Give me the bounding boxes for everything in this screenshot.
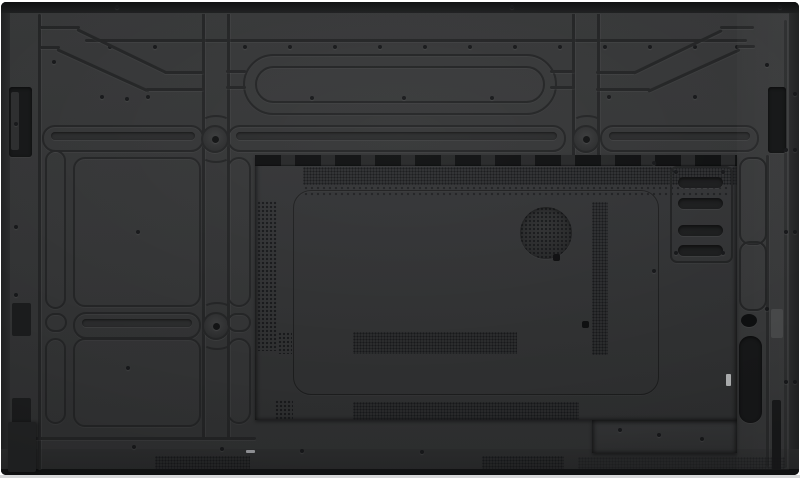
screw [402, 96, 406, 100]
mount-rail-upper [42, 125, 204, 152]
screw [648, 45, 652, 49]
screw [657, 433, 661, 437]
mount-rail-lower [73, 312, 201, 339]
screw [14, 122, 18, 126]
screw [310, 96, 314, 100]
screw [468, 45, 472, 49]
panel-channel [227, 157, 251, 307]
stadium-connector [550, 86, 575, 89]
screw [618, 428, 622, 432]
component-bay-extension [592, 420, 737, 453]
screw [333, 45, 337, 49]
bottom-vent-strip [155, 456, 250, 469]
left-seam-groove [38, 14, 41, 470]
screw [793, 380, 797, 384]
screw [652, 161, 656, 165]
diagonal-channel [596, 71, 635, 74]
top-stadium-inner [255, 66, 545, 103]
rail-slot [609, 132, 750, 140]
screw [220, 447, 224, 451]
screw [674, 170, 678, 174]
rail-end-oval [227, 313, 251, 332]
bay-vent-slots [255, 155, 737, 166]
screw-hole [582, 321, 589, 328]
screw [784, 148, 788, 152]
component-bay [255, 155, 737, 420]
screw [603, 45, 607, 49]
screw [721, 251, 725, 255]
screw [125, 97, 129, 101]
rail-slot [82, 319, 192, 327]
mount-rail-upper [600, 125, 759, 152]
vent-grille [353, 332, 517, 354]
vent-grille [257, 201, 277, 351]
diagonal-channel [164, 71, 204, 74]
port-cover-plate [670, 166, 733, 263]
screw [784, 230, 788, 234]
panel-emboss [73, 338, 201, 427]
screw [793, 230, 797, 234]
screw [300, 449, 304, 453]
screw [510, 5, 514, 9]
screw [513, 45, 517, 49]
port-slot [678, 225, 723, 236]
diagonal-channel [596, 88, 650, 91]
screw [288, 45, 292, 49]
vent-grille [592, 202, 608, 355]
left-edge [1, 13, 10, 449]
screw [721, 170, 725, 174]
rail-slot [51, 132, 195, 140]
connector-glint [726, 374, 731, 386]
screw [378, 45, 382, 49]
top-edge [1, 2, 799, 13]
connector-glint [246, 450, 255, 453]
mount-boss [201, 125, 229, 153]
cable-hole [741, 314, 757, 327]
screw [778, 5, 782, 9]
screw [153, 45, 157, 49]
screw [14, 293, 18, 297]
display-rear-photo [0, 0, 800, 478]
side-port-emboss [739, 241, 767, 311]
diagonal-channel [146, 88, 204, 91]
corner-block [8, 422, 36, 472]
vent-grille [275, 400, 293, 420]
screw-hole [553, 254, 560, 261]
mount-boss [572, 125, 600, 153]
port-slot [678, 245, 723, 256]
stadium-connector [550, 70, 575, 73]
latch-tab [771, 309, 783, 338]
screw [243, 45, 247, 49]
screw [765, 307, 769, 311]
screw [765, 63, 769, 67]
stadium-connector [226, 86, 246, 89]
vesa-rib-left [202, 14, 230, 438]
side-tab [12, 303, 31, 336]
screw [14, 225, 18, 229]
screw [607, 95, 611, 99]
screw [558, 45, 562, 49]
screw [146, 95, 150, 99]
screw [693, 95, 697, 99]
port-slot [678, 177, 723, 188]
bottom-vent-strip [578, 457, 785, 469]
screw [126, 366, 130, 370]
screw [784, 380, 788, 384]
vent-grille [353, 402, 579, 420]
handle-bar-left [11, 92, 19, 150]
screw [420, 450, 424, 454]
screw [793, 148, 797, 152]
bottom-seam-groove [30, 437, 256, 440]
screw [423, 45, 427, 49]
diagonal-channel [40, 26, 80, 29]
handle-recess-right [768, 87, 786, 153]
screw [100, 95, 104, 99]
screw [52, 60, 56, 64]
vent-grille [278, 332, 292, 354]
screw [115, 5, 119, 9]
rail-end-oval [45, 313, 67, 332]
screw [674, 251, 678, 255]
side-port-emboss [739, 157, 767, 245]
screw [700, 437, 704, 441]
screw [490, 96, 494, 100]
screw [652, 269, 656, 273]
panel-channel [45, 338, 66, 424]
screw [793, 92, 797, 96]
side-slot-recess [739, 336, 762, 423]
screw [132, 445, 136, 449]
speaker-grille [520, 207, 572, 259]
screw [136, 230, 140, 234]
panel-channel [45, 150, 66, 309]
stadium-connector [226, 70, 246, 73]
top-seam-groove [85, 39, 747, 42]
bottom-vent-strip [482, 456, 564, 469]
rail-slot [236, 132, 557, 140]
panel-channel [227, 338, 251, 424]
port-slot [678, 198, 723, 209]
mount-boss [202, 312, 230, 340]
mount-rail-upper [227, 125, 566, 152]
